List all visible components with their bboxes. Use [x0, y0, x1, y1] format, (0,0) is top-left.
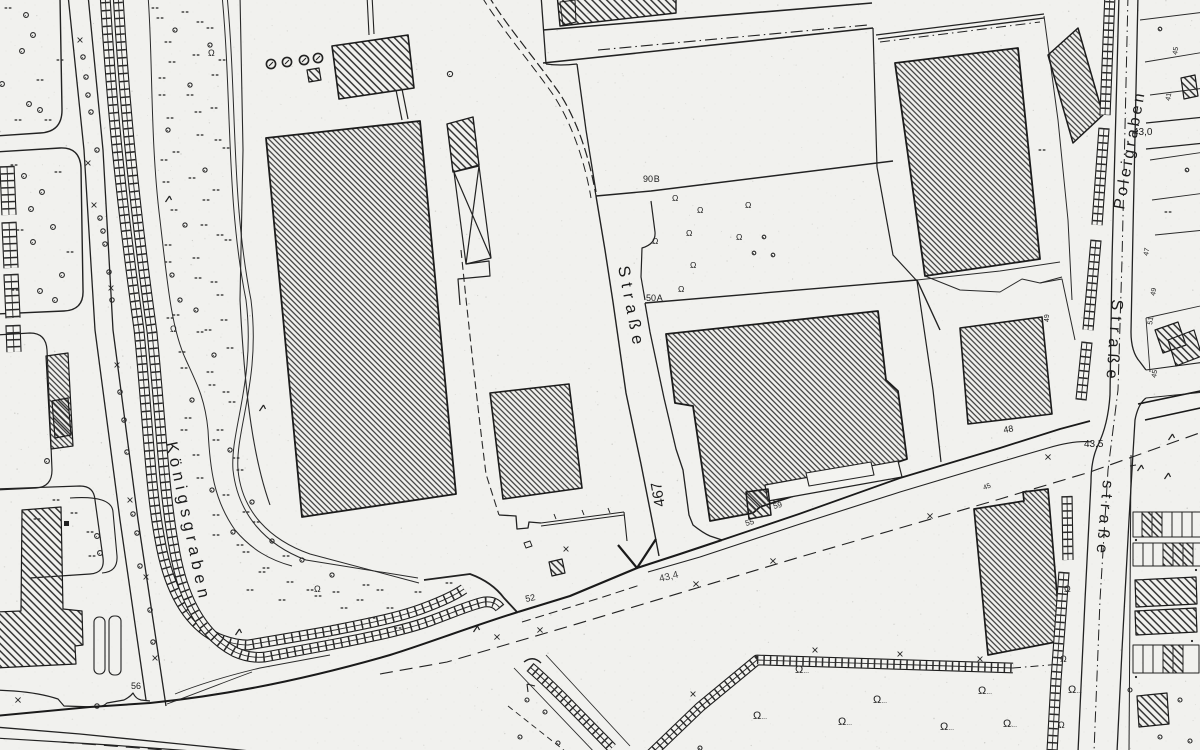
svg-text:Ω: Ω [678, 284, 684, 294]
svg-text:Ω: Ω [1060, 654, 1067, 664]
svg-text:49: 49 [1044, 314, 1051, 322]
svg-text:Ω: Ω [736, 232, 742, 242]
svg-text:Ω: Ω [690, 260, 696, 270]
svg-text:45: 45 [1172, 46, 1180, 55]
svg-text:Ω: Ω [652, 236, 658, 246]
svg-text:45: 45 [1151, 369, 1159, 378]
svg-text:43,5: 43,5 [1084, 439, 1104, 450]
svg-text:48: 48 [1003, 423, 1015, 435]
svg-text:56: 56 [131, 681, 141, 691]
svg-text:47: 47 [1143, 247, 1151, 256]
svg-text:50 A: 50 A [646, 293, 663, 303]
svg-text:43,0: 43,0 [1133, 127, 1153, 138]
svg-text:Ω: Ω [686, 228, 692, 238]
svg-text:Ω: Ω [208, 48, 215, 58]
svg-text:90 B: 90 B [643, 174, 660, 184]
svg-text:52: 52 [524, 592, 536, 604]
svg-text:41: 41 [1165, 92, 1173, 101]
svg-text:Ω: Ω [697, 205, 703, 215]
svg-text:Ω: Ω [314, 584, 321, 594]
svg-text:Ω: Ω [170, 324, 177, 334]
svg-text:Ω: Ω [1058, 720, 1065, 730]
svg-text:Ω: Ω [745, 200, 751, 210]
svg-text:Ω: Ω [672, 193, 678, 203]
svg-text:49: 49 [1150, 287, 1158, 296]
svg-text:Ω: Ω [1064, 584, 1071, 594]
